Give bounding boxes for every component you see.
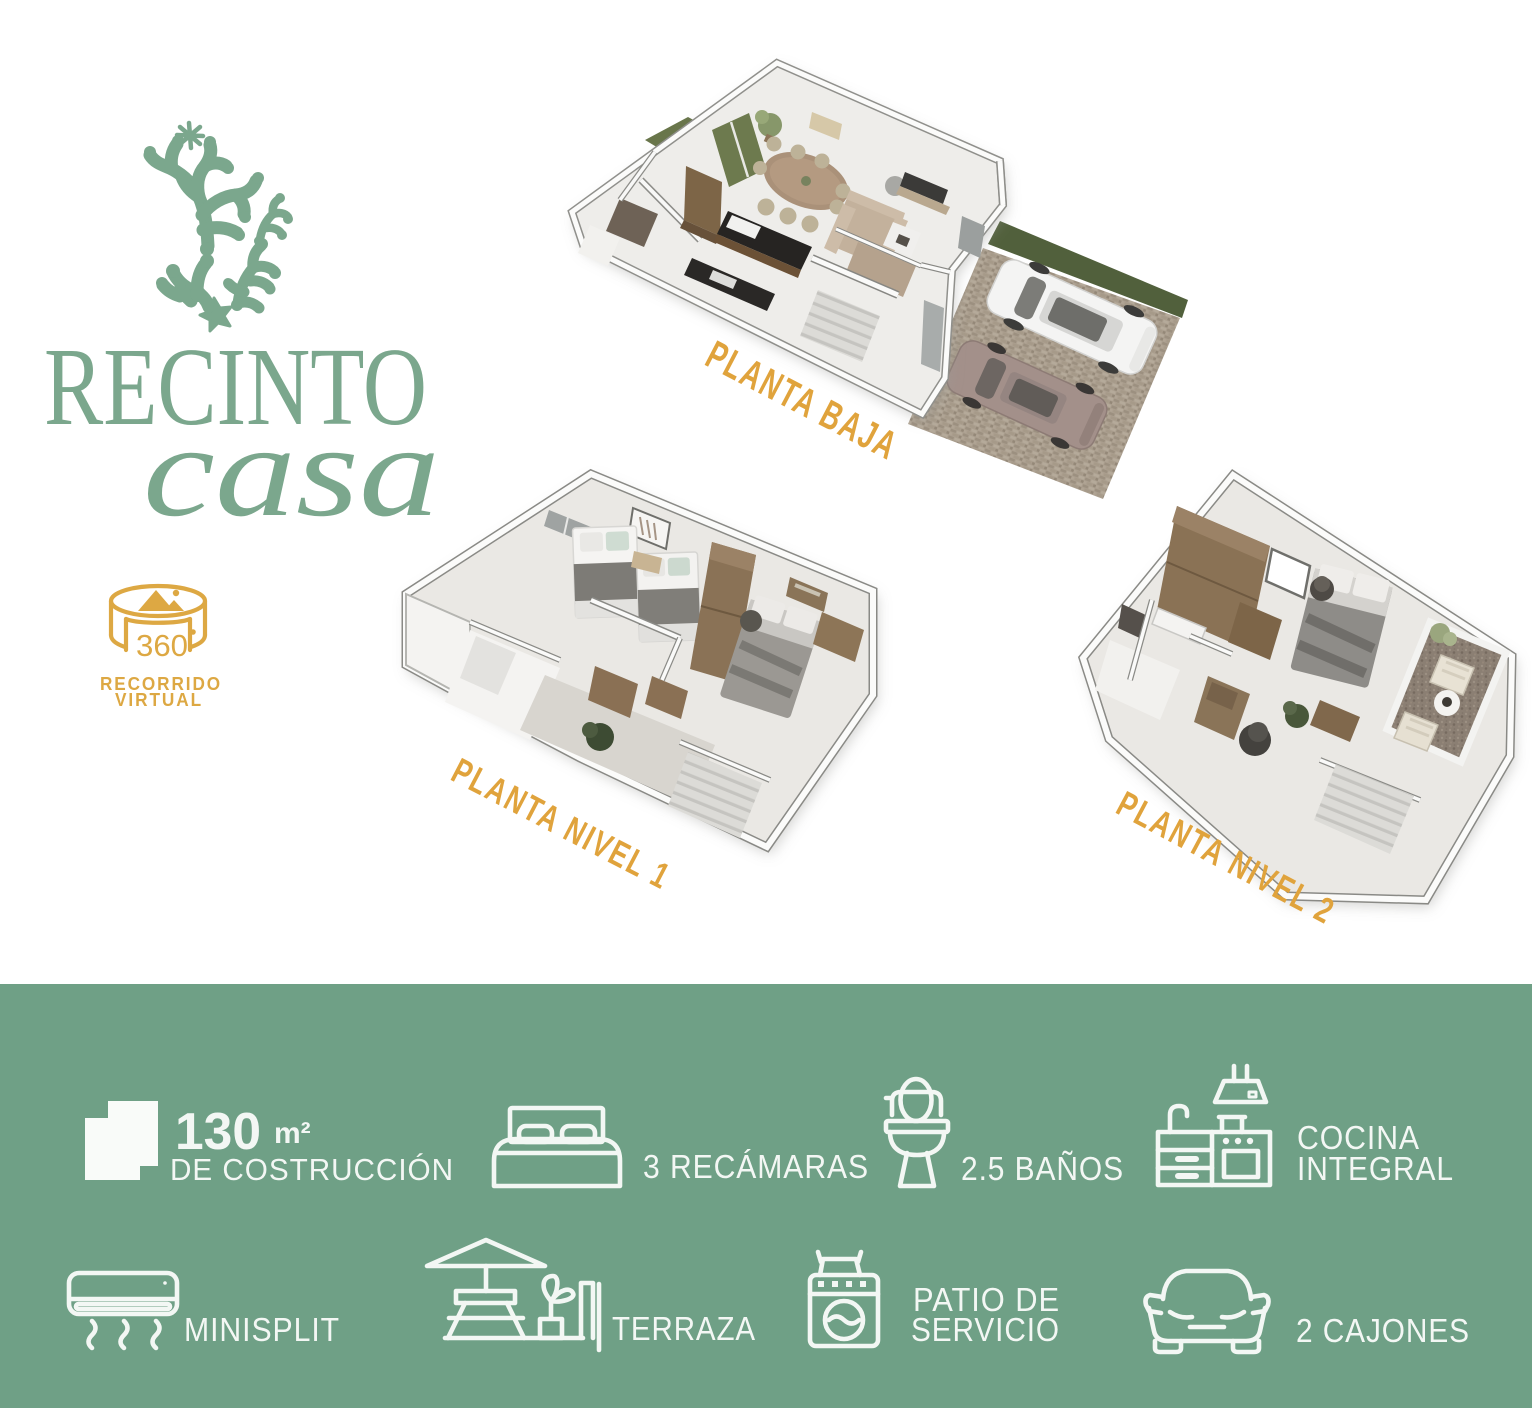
svg-text:TERRAZA: TERRAZA <box>612 1310 756 1347</box>
svg-text:VIRTUAL: VIRTUAL <box>115 690 203 710</box>
svg-text:SERVICIO: SERVICIO <box>911 1311 1060 1348</box>
svg-text:MINISPLIT: MINISPLIT <box>184 1311 340 1348</box>
svg-text:DE COSTRUCCIÓN: DE COSTRUCCIÓN <box>170 1152 454 1187</box>
svg-text:3 RECÁMARAS: 3 RECÁMARAS <box>643 1148 869 1185</box>
svg-text:360: 360 <box>136 628 188 663</box>
svg-text:casa: casa <box>143 397 440 544</box>
svg-text:2 CAJONES: 2 CAJONES <box>1296 1312 1470 1349</box>
svg-text:INTEGRAL: INTEGRAL <box>1297 1150 1454 1187</box>
svg-text:2.5 BAÑOS: 2.5 BAÑOS <box>961 1150 1124 1187</box>
svg-text:m²: m² <box>274 1117 311 1150</box>
